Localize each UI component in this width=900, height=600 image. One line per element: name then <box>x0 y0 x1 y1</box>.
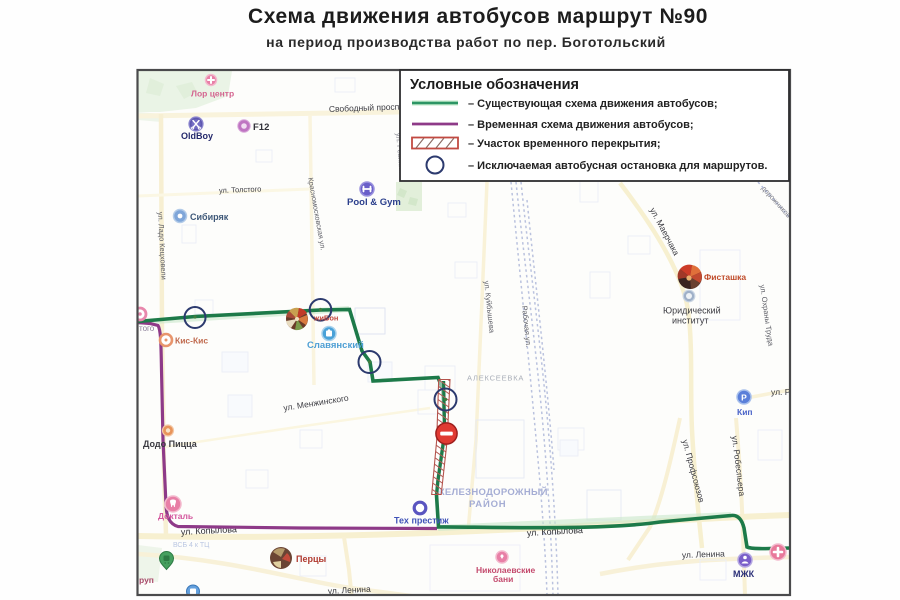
svg-text:ул. Толстого: ул. Толстого <box>219 184 262 194</box>
svg-text:руп: руп <box>139 575 154 585</box>
svg-text:Кип: Кип <box>737 407 753 417</box>
svg-text:– Исключаемая автобусная оста: – Исключаемая автобусная остановка для м… <box>468 160 767 172</box>
svg-text:Перцы: Перцы <box>296 554 327 564</box>
svg-text:ул. Ленина: ул. Ленина <box>682 548 726 560</box>
svg-text:институт: институт <box>672 316 709 326</box>
svg-text:Юридический: Юридический <box>663 306 721 316</box>
svg-text:жиБон: жиБон <box>313 314 338 323</box>
svg-text:Славянский: Славянский <box>307 340 364 351</box>
svg-text:МЖК: МЖК <box>733 569 755 579</box>
svg-text:РАЙОН: РАЙОН <box>469 498 506 510</box>
svg-text:Додо Пицца: Додо Пицца <box>143 439 198 449</box>
svg-text:Тех престиж: Тех престиж <box>394 516 449 526</box>
svg-text:Условные обозначения: Условные обозначения <box>410 77 579 93</box>
svg-text:– Существующая схема движения: – Существующая схема движения автобусов; <box>468 98 718 110</box>
svg-text:F12: F12 <box>253 122 269 133</box>
svg-text:OldBoy: OldBoy <box>181 131 213 141</box>
svg-text:ул. Р: ул. Р <box>771 387 791 397</box>
svg-text:бани: бани <box>493 574 513 584</box>
svg-text:Кис-Кис: Кис-Кис <box>175 336 208 346</box>
svg-text:– Участок временного перекрыт: – Участок временного перекрытия; <box>468 138 661 150</box>
svg-text:АЛЕКСЕЕВКА: АЛЕКСЕЕВКА <box>467 374 524 383</box>
svg-text:Докталь: Докталь <box>158 511 193 521</box>
svg-text:Фисташка: Фисташка <box>704 272 746 282</box>
svg-text:ЖЕЛЕЗНОДОРОЖНЫЙ: ЖЕЛЕЗНОДОРОЖНЫЙ <box>435 486 548 498</box>
svg-text:ВСБ 4 к ТЦ: ВСБ 4 к ТЦ <box>173 542 210 549</box>
svg-text:Pool & Gym: Pool & Gym <box>347 197 401 208</box>
svg-text:– Временная схема движения ав: – Временная схема движения автобусов; <box>468 119 694 131</box>
svg-text:P: P <box>741 393 747 403</box>
svg-text:Сибиряк: Сибиряк <box>190 212 229 222</box>
svg-text:Лор центр: Лор центр <box>191 89 234 99</box>
